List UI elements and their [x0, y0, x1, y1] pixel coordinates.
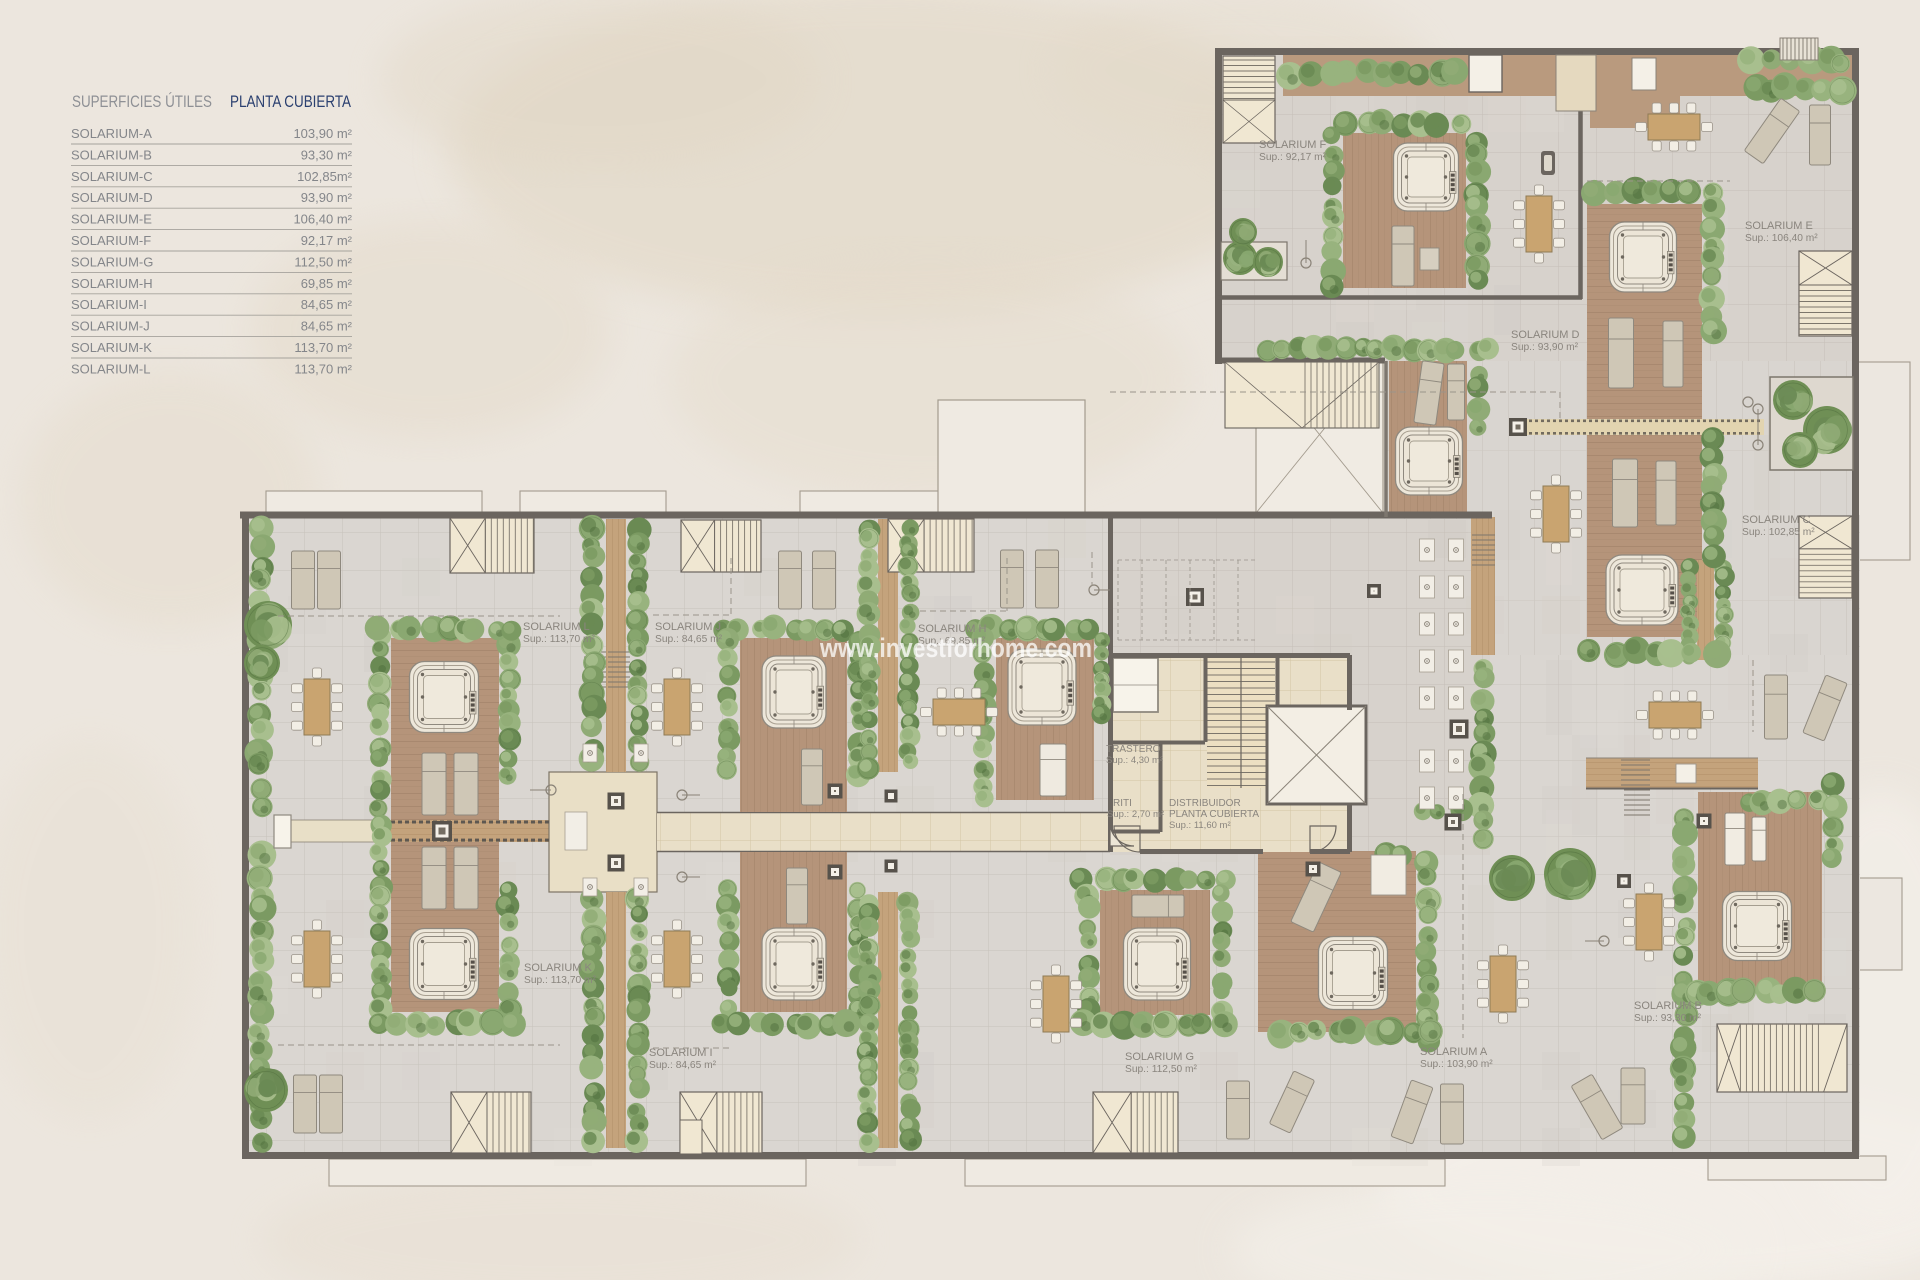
svg-text:103,90 m²: 103,90 m² — [293, 126, 352, 141]
svg-text:SOLARIUM-E: SOLARIUM-E — [71, 212, 152, 227]
svg-text:SOLARIUM-A: SOLARIUM-A — [71, 126, 152, 141]
svg-text:Sup.: 92,17 m²: Sup.: 92,17 m² — [1259, 152, 1327, 163]
svg-text:SOLARIUM K: SOLARIUM K — [524, 962, 593, 974]
svg-text:SOLARIUM-K: SOLARIUM-K — [71, 340, 152, 355]
svg-text:SOLARIUM C: SOLARIUM C — [1742, 514, 1811, 526]
svg-text:TRASTERO: TRASTERO — [1106, 744, 1161, 755]
svg-text:SUPERFICIES ÚTILES: SUPERFICIES ÚTILES — [72, 92, 212, 111]
svg-text:SOLARIUM F: SOLARIUM F — [1259, 139, 1327, 151]
svg-text:SOLARIUM-L: SOLARIUM-L — [71, 361, 150, 376]
svg-text:93,90 m²: 93,90 m² — [301, 190, 353, 205]
svg-text:Sup.: 84,65 m²: Sup.: 84,65 m² — [655, 634, 723, 645]
svg-text:SOLARIUM-C: SOLARIUM-C — [71, 169, 153, 184]
svg-text:Sup.: 113,70 m²: Sup.: 113,70 m² — [524, 975, 597, 986]
svg-text:www.investforhome.com: www.investforhome.com — [819, 633, 1092, 663]
svg-text:SOLARIUM L: SOLARIUM L — [523, 621, 590, 633]
svg-text:112,50 m²: 112,50 m² — [294, 254, 352, 269]
svg-text:RITI: RITI — [1113, 798, 1132, 809]
svg-text:Sup.: 84,65 m²: Sup.: 84,65 m² — [649, 1060, 717, 1071]
svg-text:Sup.: 4,30 m²: Sup.: 4,30 m² — [1106, 755, 1163, 766]
svg-text:SOLARIUM-J: SOLARIUM-J — [71, 319, 150, 334]
svg-text:SOLARIUM D: SOLARIUM D — [1511, 329, 1580, 341]
svg-text:SOLARIUM E: SOLARIUM E — [1745, 220, 1813, 232]
svg-text:Sup.: 11,60 m²: Sup.: 11,60 m² — [1169, 820, 1231, 831]
svg-text:SOLARIUM-G: SOLARIUM-G — [71, 254, 153, 269]
svg-text:Sup.: 106,40 m²: Sup.: 106,40 m² — [1745, 233, 1818, 244]
svg-text:SOLARIUM I: SOLARIUM I — [649, 1047, 713, 1059]
svg-text:SOLARIUM-D: SOLARIUM-D — [71, 190, 153, 205]
svg-text:102,85m²: 102,85m² — [297, 169, 353, 184]
svg-text:PLANTA CUBIERTA: PLANTA CUBIERTA — [1169, 809, 1259, 820]
svg-text:Sup.: 93,90 m²: Sup.: 93,90 m² — [1511, 342, 1579, 353]
svg-text:SOLARIUM-I: SOLARIUM-I — [71, 297, 147, 312]
svg-text:PLANTA CUBIERTA: PLANTA CUBIERTA — [230, 92, 352, 111]
svg-text:84,65 m²: 84,65 m² — [301, 297, 353, 312]
svg-text:84,65 m²: 84,65 m² — [301, 319, 353, 334]
svg-text:Sup.: 102,85 m²: Sup.: 102,85 m² — [1742, 527, 1815, 538]
svg-text:Sup.: 112,50 m²: Sup.: 112,50 m² — [1125, 1064, 1198, 1075]
svg-text:SOLARIUM-H: SOLARIUM-H — [71, 276, 153, 291]
svg-text:Sup.: 2,70 m²: Sup.: 2,70 m² — [1107, 809, 1164, 820]
svg-text:106,40 m²: 106,40 m² — [293, 212, 352, 227]
svg-text:SOLARIUM B: SOLARIUM B — [1634, 1000, 1702, 1012]
svg-text:SOLARIUM-B: SOLARIUM-B — [71, 147, 152, 162]
svg-text:69,85 m²: 69,85 m² — [301, 276, 353, 291]
svg-text:113,70 m²: 113,70 m² — [294, 361, 352, 376]
svg-text:DISTRIBUIDOR: DISTRIBUIDOR — [1169, 798, 1241, 809]
svg-text:Sup.: 113,70 m²: Sup.: 113,70 m² — [523, 634, 596, 645]
svg-text:SOLARIUM-F: SOLARIUM-F — [71, 233, 151, 248]
svg-text:Sup.: 93,30 m²: Sup.: 93,30 m² — [1634, 1013, 1702, 1024]
svg-text:SOLARIUM J: SOLARIUM J — [655, 621, 721, 633]
svg-text:92,17 m²: 92,17 m² — [301, 233, 353, 248]
svg-text:SOLARIUM A: SOLARIUM A — [1420, 1046, 1488, 1058]
svg-text:93,30 m²: 93,30 m² — [301, 147, 353, 162]
svg-text:Sup.: 103,90 m²: Sup.: 103,90 m² — [1420, 1059, 1493, 1070]
svg-text:SOLARIUM G: SOLARIUM G — [1125, 1051, 1194, 1063]
svg-text:113,70 m²: 113,70 m² — [294, 340, 352, 355]
